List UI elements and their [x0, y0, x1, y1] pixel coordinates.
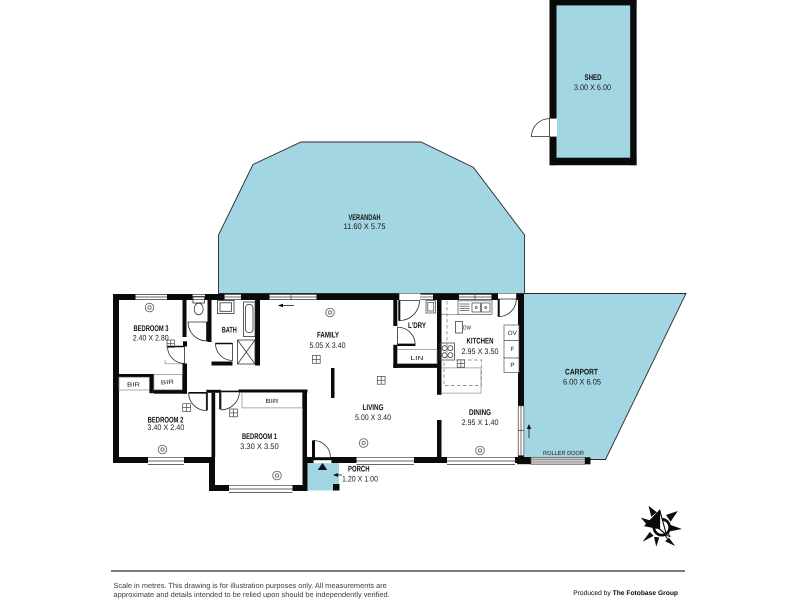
- svg-text:BEDROOM 1: BEDROOM 1: [242, 432, 277, 441]
- svg-text:Scale in metres. This drawing: Scale in metres. This drawing is for ill…: [114, 581, 387, 590]
- svg-text:DINING: DINING: [469, 408, 491, 417]
- svg-text:P: P: [510, 362, 514, 369]
- svg-text:6.00 X 6.05: 6.00 X 6.05: [563, 378, 602, 387]
- svg-text:BATH: BATH: [222, 326, 237, 335]
- svg-text:3.00 X 6.00: 3.00 X 6.00: [574, 83, 611, 92]
- svg-text:5.00 X 3.40: 5.00 X 3.40: [355, 413, 391, 422]
- svg-text:OV: OV: [508, 330, 518, 337]
- svg-text:VERANDAH: VERANDAH: [349, 213, 381, 222]
- svg-text:PORCH: PORCH: [348, 465, 370, 474]
- svg-text:FAMILY: FAMILY: [317, 331, 339, 340]
- svg-text:2.95 X 1.40: 2.95 X 1.40: [462, 418, 499, 427]
- svg-text:5.05 X 3.40: 5.05 X 3.40: [310, 341, 346, 350]
- svg-text:LIVING: LIVING: [363, 403, 384, 412]
- svg-text:F: F: [511, 346, 515, 353]
- svg-text:DW: DW: [463, 326, 471, 332]
- svg-text:CARPORT: CARPORT: [565, 368, 598, 377]
- svg-text:3.30 X 3.50: 3.30 X 3.50: [240, 442, 279, 451]
- svg-text:1.20 X 1.00: 1.20 X 1.00: [342, 475, 378, 484]
- svg-text:2.40 X 2.80: 2.40 X 2.80: [133, 334, 169, 343]
- svg-text:BIR: BIR: [161, 378, 175, 386]
- svg-text:L'DRY: L'DRY: [408, 321, 426, 330]
- svg-text:SHED: SHED: [585, 73, 602, 82]
- svg-text:2.95 X 3.50: 2.95 X 3.50: [462, 347, 499, 356]
- svg-text:ROLLER DOOR: ROLLER DOOR: [543, 450, 585, 457]
- svg-text:approximate and details intend: approximate and details intended to be r…: [114, 590, 390, 599]
- svg-text:BIR: BIR: [266, 398, 280, 405]
- svg-text:3.40 X 2.40: 3.40 X 2.40: [147, 423, 184, 432]
- svg-text:BIR: BIR: [127, 382, 141, 389]
- svg-text:KITCHEN: KITCHEN: [467, 337, 494, 346]
- svg-text:BEDROOM 3: BEDROOM 3: [134, 324, 169, 333]
- svg-text:Produced by The Fotobase Group: Produced by The Fotobase Group: [573, 590, 678, 597]
- svg-text:LIN: LIN: [411, 355, 424, 362]
- svg-text:11.60 X 5.75: 11.60 X 5.75: [344, 222, 387, 231]
